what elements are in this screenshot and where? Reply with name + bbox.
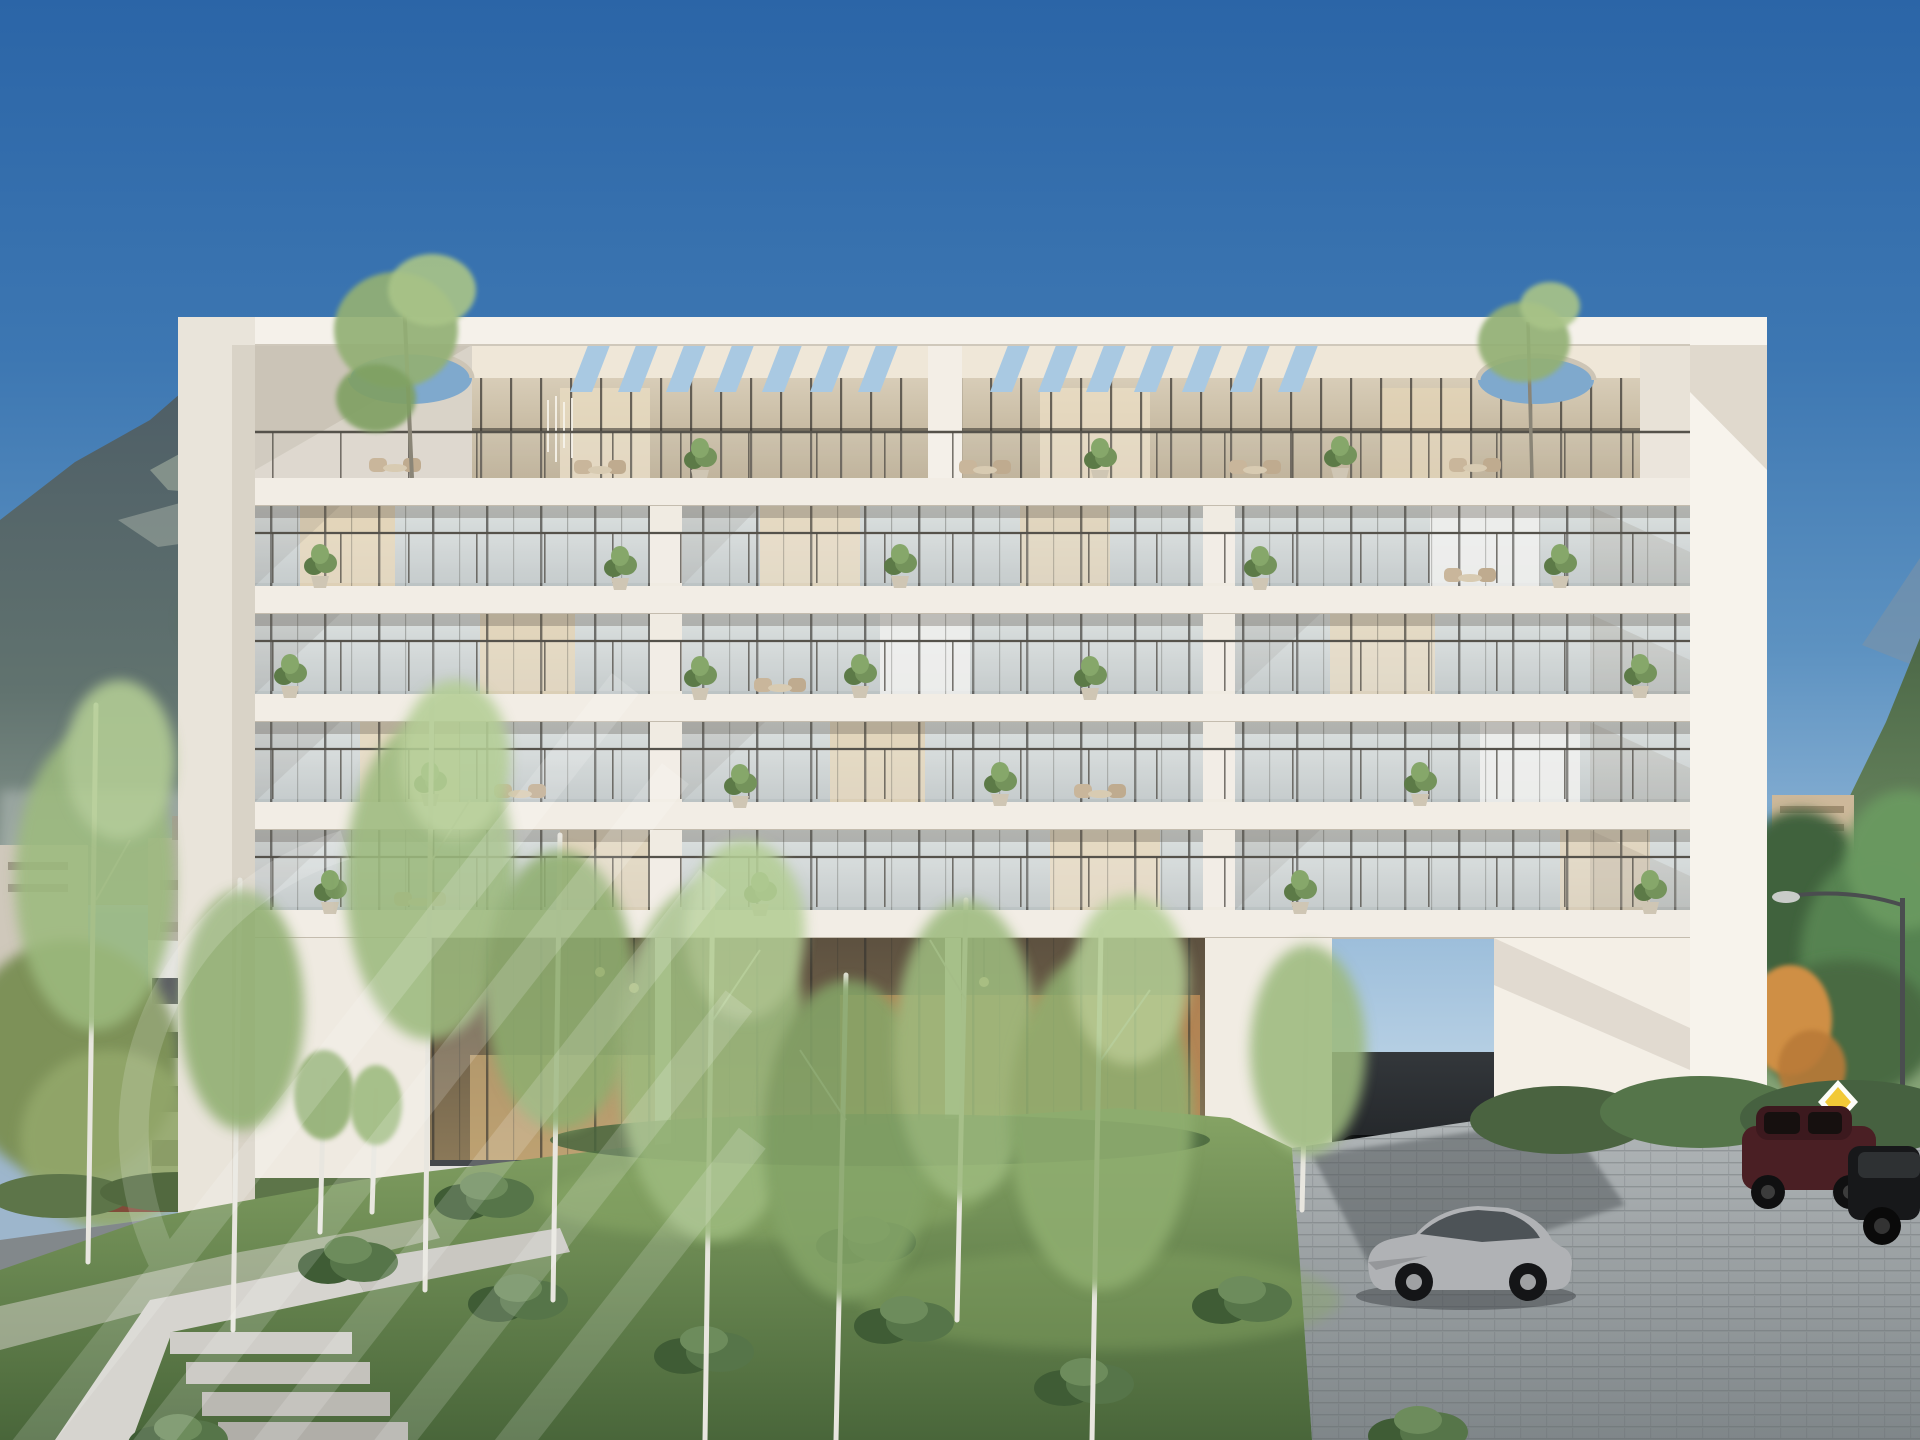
architectural-render — [0, 0, 1920, 1440]
render-canvas — [0, 0, 1920, 1440]
penthouse — [255, 340, 1690, 482]
floor-4 — [255, 506, 1690, 590]
